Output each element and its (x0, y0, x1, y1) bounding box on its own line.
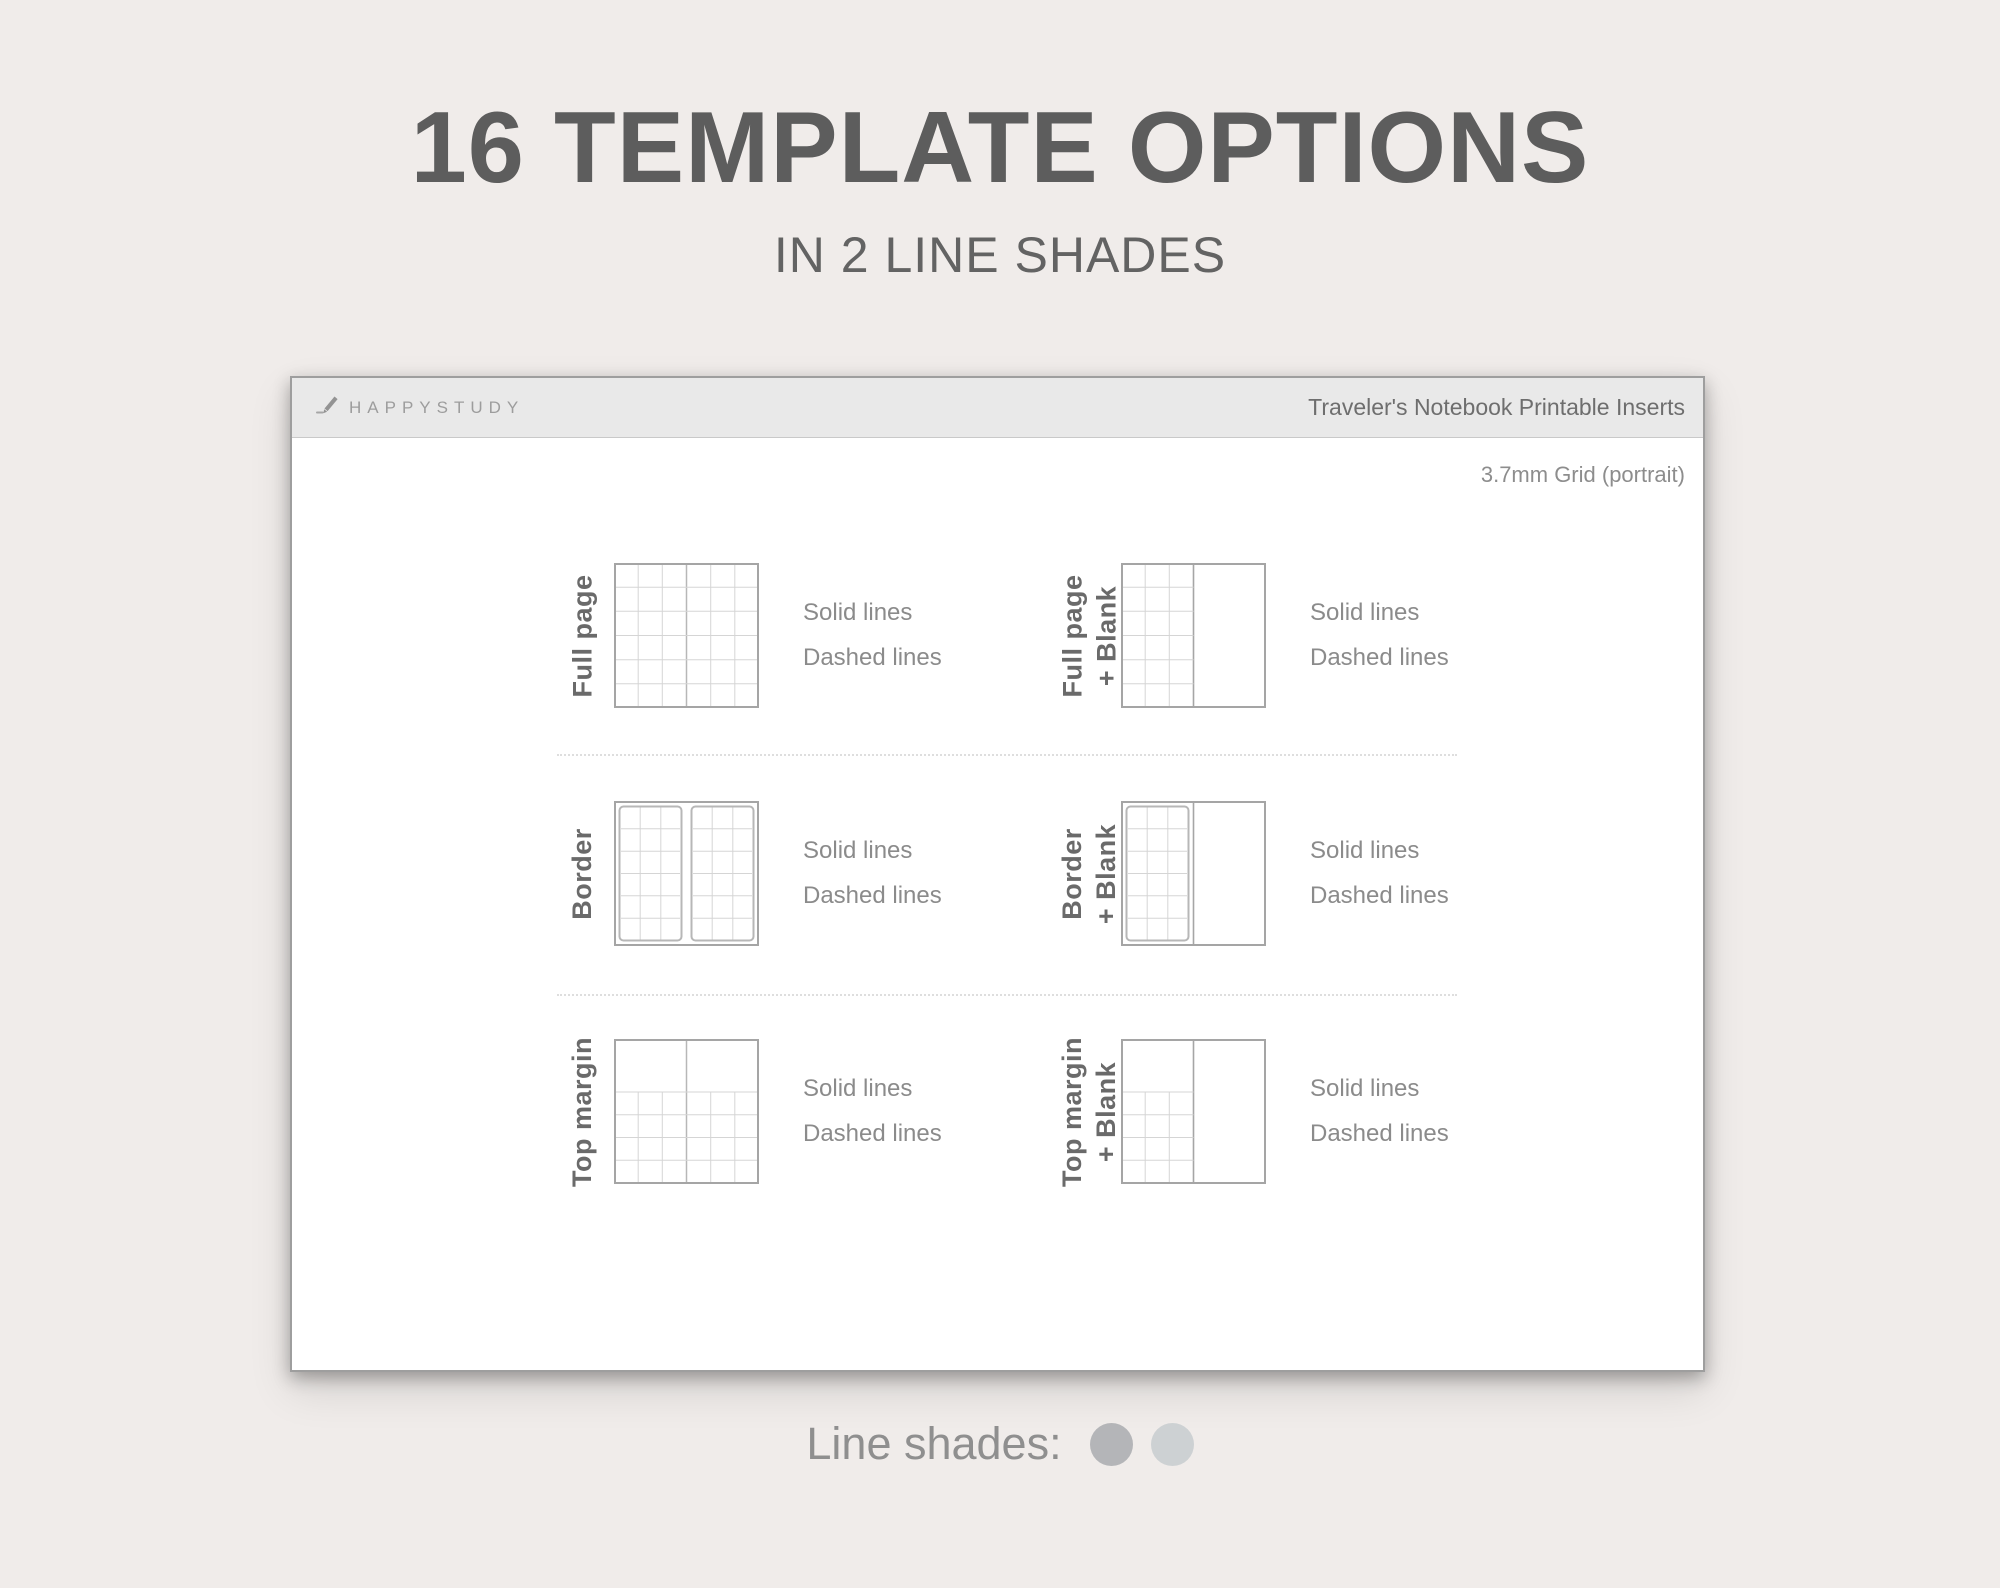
page-title: 16 TEMPLATE OPTIONS (0, 98, 2000, 199)
option-solid-lines: Solid lines (803, 837, 942, 865)
option-solid-lines: Solid lines (803, 599, 942, 627)
option-dashed-lines: Dashed lines (803, 644, 942, 672)
template-option-full-page: Full page Solid lines Dashed lines (550, 563, 942, 708)
template-label: Full page (565, 574, 599, 697)
option-solid-lines: Solid lines (1310, 1075, 1449, 1103)
grid-size-note: 3.7mm Grid (portrait) (1481, 462, 1685, 488)
row-separator (557, 754, 1457, 756)
template-label: Border+ Blank (1055, 823, 1123, 923)
card-header: HAPPYSTUDY Traveler's Notebook Printable… (292, 378, 1703, 438)
line-shades-legend: Line shades: (0, 1418, 2000, 1470)
option-solid-lines: Solid lines (1310, 837, 1449, 865)
top-margin-blank-grid-thumbnail (1121, 1039, 1266, 1184)
brand-name: HAPPYSTUDY (349, 398, 524, 418)
border-grid-thumbnail (614, 801, 759, 946)
full-page-blank-grid-thumbnail (1121, 563, 1266, 708)
option-solid-lines: Solid lines (803, 1075, 942, 1103)
template-label: Top margin+ Blank (1055, 1037, 1123, 1187)
template-option-top-margin: Top margin Solid lines Dashed lines (550, 1039, 942, 1184)
page-subtitle: IN 2 LINE SHADES (0, 230, 2000, 280)
template-option-top-margin-blank: Top margin+ Blank Solid lines Dashed lin… (1057, 1039, 1449, 1184)
template-label: Full page+ Blank (1055, 574, 1123, 697)
card-header-title: Traveler's Notebook Printable Inserts (1308, 394, 1685, 421)
template-label: Border (565, 828, 599, 920)
promo-graphic: 16 TEMPLATE OPTIONS IN 2 LINE SHADES HAP… (0, 0, 2000, 1588)
option-solid-lines: Solid lines (1310, 599, 1449, 627)
option-dashed-lines: Dashed lines (803, 1120, 942, 1148)
template-option-border: Border Solid lines Dashed lines (550, 801, 942, 946)
template-label: Top margin (565, 1037, 599, 1187)
option-dashed-lines: Dashed lines (803, 882, 942, 910)
top-margin-grid-thumbnail (614, 1039, 759, 1184)
option-dashed-lines: Dashed lines (1310, 882, 1449, 910)
pencil-icon (314, 394, 340, 421)
border-blank-grid-thumbnail (1121, 801, 1266, 946)
template-option-border-blank: Border+ Blank Solid lines Dashed lines (1057, 801, 1449, 946)
shade-swatch-dark (1090, 1423, 1133, 1466)
option-dashed-lines: Dashed lines (1310, 1120, 1449, 1148)
option-dashed-lines: Dashed lines (1310, 644, 1449, 672)
line-shades-label: Line shades: (806, 1418, 1061, 1470)
shade-swatch-light (1151, 1423, 1194, 1466)
brand-logo: HAPPYSTUDY (314, 394, 524, 421)
inserts-preview-card: HAPPYSTUDY Traveler's Notebook Printable… (290, 376, 1705, 1372)
template-option-full-page-blank: Full page+ Blank Solid lines Dashed line… (1057, 563, 1449, 708)
row-separator (557, 994, 1457, 996)
full-page-grid-thumbnail (614, 563, 759, 708)
